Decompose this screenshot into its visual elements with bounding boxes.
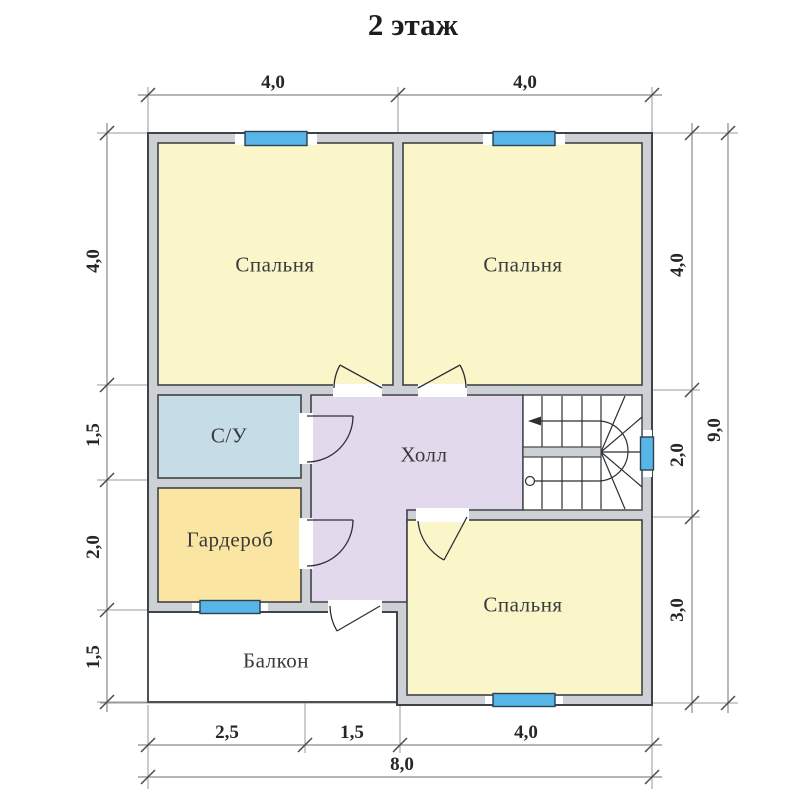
window-bedroom-1-icon xyxy=(245,132,307,146)
window-stairs-icon xyxy=(641,437,654,470)
door-opening-bathroom xyxy=(299,413,313,464)
label-balcony: Балкон xyxy=(243,649,309,674)
dim-right-1: 4,0 xyxy=(667,253,689,277)
dim-bottom-3: 4,0 xyxy=(514,722,538,744)
dim-right-3: 3,0 xyxy=(667,598,689,622)
dim-right-2: 2,0 xyxy=(667,443,689,467)
floor-plan-drawing xyxy=(0,0,800,800)
door-opening-wardrobe xyxy=(299,518,313,569)
door-opening-bedroom-2 xyxy=(418,384,467,397)
dim-left-2: 1,5 xyxy=(83,423,105,447)
dim-bottom-1: 2,5 xyxy=(215,722,239,744)
dim-right-total: 9,0 xyxy=(704,418,726,442)
label-wardrobe: Гардероб xyxy=(187,528,274,553)
window-bedroom-2-icon xyxy=(493,132,555,146)
door-opening-bedroom-1 xyxy=(333,384,382,397)
label-bedroom-2: Спальня xyxy=(483,253,562,278)
label-bedroom-1: Спальня xyxy=(235,253,314,278)
door-opening-bedroom-3 xyxy=(416,508,469,522)
dim-bottom-total: 8,0 xyxy=(390,754,414,776)
dim-left-4: 1,5 xyxy=(83,645,105,669)
walkline-start-circle xyxy=(526,477,535,486)
dim-top-2: 4,0 xyxy=(513,72,537,94)
dim-left-3: 2,0 xyxy=(83,535,105,559)
door-opening-balcony xyxy=(328,600,382,614)
label-bedroom-3: Спальня xyxy=(483,593,562,618)
stair-divider-wall xyxy=(523,447,601,457)
floor-plan-page: 2 этаж Спальня Спальня С/У Гардероб Холл… xyxy=(0,0,800,800)
page-title: 2 этаж xyxy=(368,7,458,43)
label-bathroom: С/У xyxy=(211,424,247,449)
label-hall: Холл xyxy=(400,443,447,468)
dim-top-1: 4,0 xyxy=(261,72,285,94)
dim-bottom-2: 1,5 xyxy=(340,722,364,744)
dim-left-1: 4,0 xyxy=(83,249,105,273)
window-bedroom-3-icon xyxy=(493,694,555,707)
window-wardrobe-icon xyxy=(200,601,260,614)
